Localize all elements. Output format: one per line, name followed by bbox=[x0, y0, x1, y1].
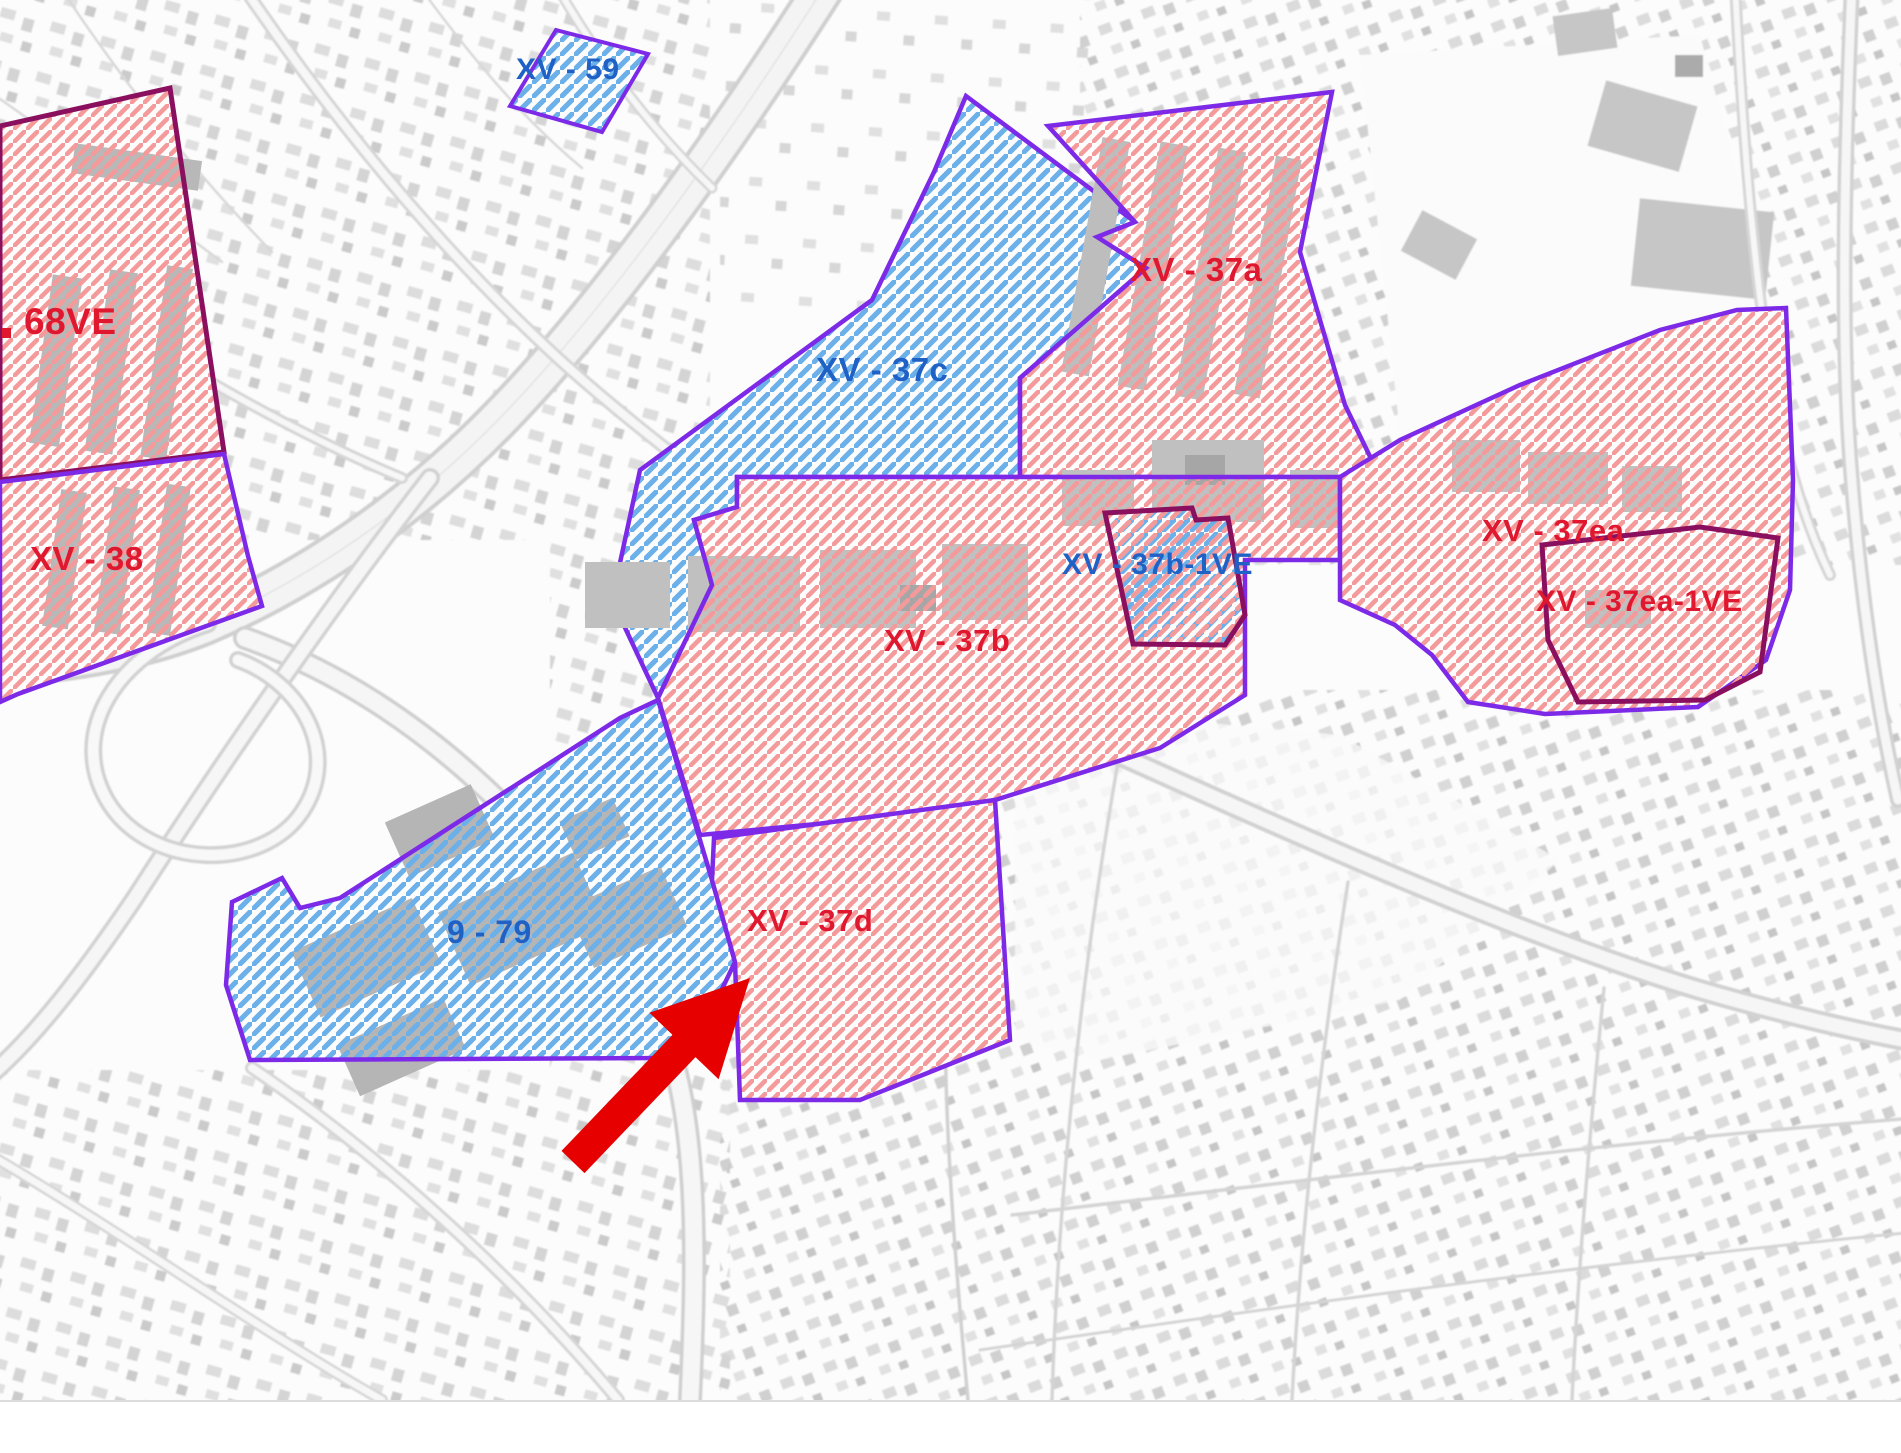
zoning-map-page: 68VE XV - 38 XV - 59 XV - 37c XV - 37a X… bbox=[0, 0, 1901, 1453]
zone-label-xv-37ea: XV - 37ea bbox=[1482, 515, 1624, 546]
zone-xv-37d bbox=[712, 800, 1010, 1100]
zone-label-9-79: 9 - 79 bbox=[447, 916, 532, 948]
zone-label-xv-37ea-1ve: XV - 37ea-1VE bbox=[1536, 587, 1743, 617]
footer-table-fragment: Nummer des XV - 37d bbox=[0, 1400, 1901, 1453]
label-fragment-68ve bbox=[2, 328, 11, 338]
zone-label-xv-59: XV - 59 bbox=[516, 55, 620, 85]
zone-label-xv-37d: XV - 37d bbox=[747, 905, 873, 936]
zone-label-xv-37c: XV - 37c bbox=[816, 353, 948, 386]
zone-label-xv-37b: XV - 37b bbox=[884, 625, 1010, 656]
zone-label-68ve: 68VE bbox=[24, 303, 117, 340]
zoning-map bbox=[0, 0, 1901, 1400]
zone-label-xv-37b-1ve: XV - 37b-1VE bbox=[1062, 550, 1253, 580]
zone-label-xv-37a: XV - 37a bbox=[1130, 253, 1262, 286]
zone-label-xv-38: XV - 38 bbox=[30, 542, 144, 575]
